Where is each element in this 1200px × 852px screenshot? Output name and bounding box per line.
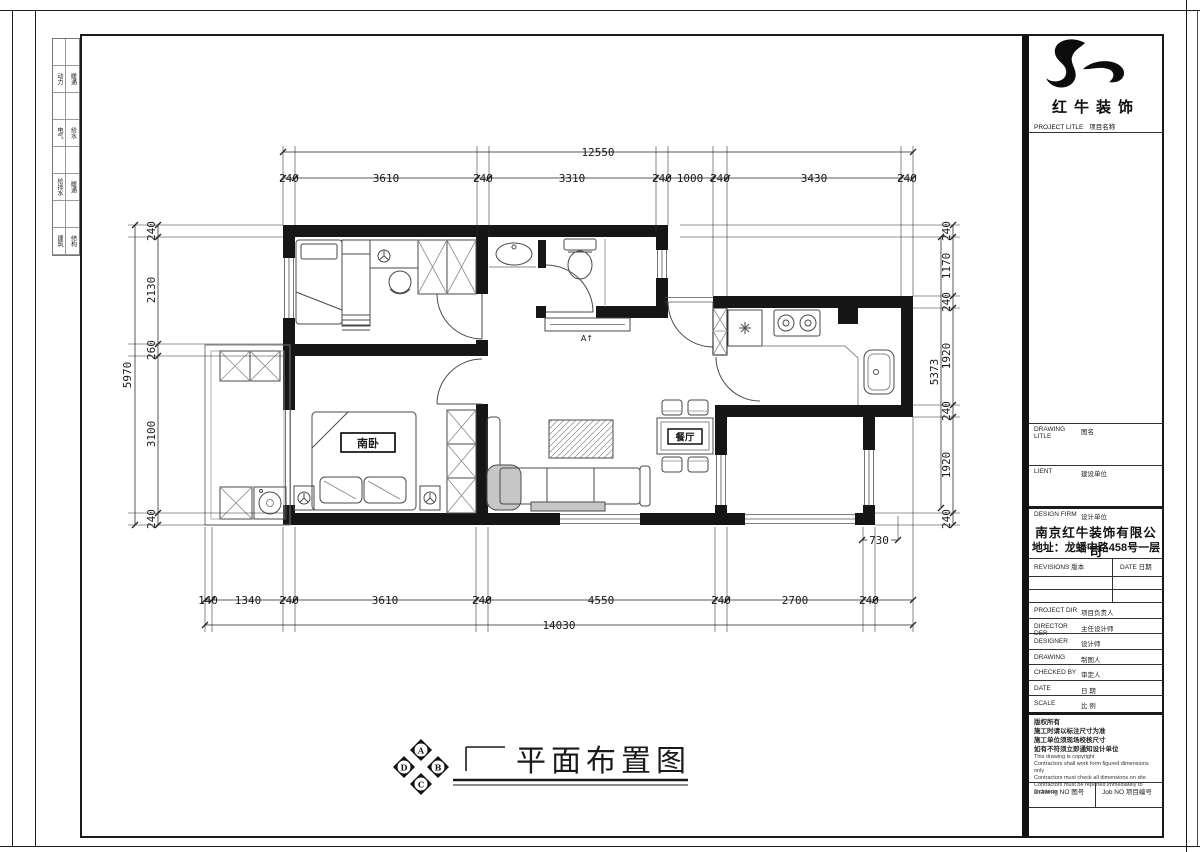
dim-top-0: 240 <box>279 172 299 185</box>
dim-top-5: 1000 <box>677 172 704 185</box>
bedroom-wardrobe <box>447 410 476 513</box>
balcony-enclosure <box>205 345 290 525</box>
dim-top-2: 240 <box>473 172 493 185</box>
revisions-header: REVISIONS 版本 DATE 日期 <box>1029 561 1163 571</box>
bull-logo-icon <box>1041 39 1151 95</box>
dimension-texts: 12550 240 3610 240 3310 240 1000 240 343… <box>121 146 953 632</box>
extension-lines <box>128 146 960 632</box>
strip-label: 电气 <box>56 127 62 139</box>
dim-bottom-5: 4550 <box>588 594 615 607</box>
compass-symbol: A B C D <box>393 739 449 795</box>
master-bed <box>312 412 416 510</box>
study-door <box>437 294 482 339</box>
compass-n: A <box>417 746 425 756</box>
brand-name: 红牛装饰 <box>1029 96 1163 117</box>
kitchen-door <box>716 357 760 401</box>
kitchen-flue <box>713 308 727 355</box>
kitchen-sink <box>864 350 894 394</box>
kitchen-counter-edge <box>762 346 858 405</box>
dim-bottom-0: 140 <box>198 594 218 607</box>
dim-left-2: 260 <box>145 340 158 360</box>
strip-label: 结构 <box>70 235 76 247</box>
dim-right-4: 240 <box>940 401 953 421</box>
study-wardrobe <box>418 240 476 294</box>
copyright-block: 版权所有 施工时请以标注尺寸为准 施工单位须现场校核尺寸 如有不符须立即通知设计… <box>1029 718 1163 796</box>
dimension-lines <box>135 152 953 625</box>
study-shelf <box>342 240 370 330</box>
dim-right-2: 240 <box>940 292 953 312</box>
drawing-no-row: Drawing NO 图号 Job NO 项目编号 <box>1029 786 1163 796</box>
compass-w: D <box>401 763 408 773</box>
strip-label: 给水 <box>70 127 76 139</box>
bedroom-door <box>437 359 482 404</box>
logo <box>1029 39 1163 95</box>
bath-east-window <box>658 250 667 278</box>
title-bracket <box>466 747 505 771</box>
study-desk <box>370 240 418 268</box>
living-east-window <box>717 455 726 505</box>
dim-top-8: 240 <box>897 172 917 185</box>
fridge <box>728 310 762 346</box>
dim-bottom-3: 3610 <box>372 594 399 607</box>
dim-top-1: 3610 <box>373 172 400 185</box>
dim-left-3: 3100 <box>145 421 158 448</box>
utility-south-window <box>745 515 855 524</box>
drawing-title-group: 平面布置图 <box>453 744 691 785</box>
discipline-strip: 动力 暖通 电气 给水 给排水 暖通 建筑 结构 <box>52 38 80 256</box>
designer-row: DESIGNER 设计师 <box>1029 638 1163 648</box>
utility-east-window <box>865 450 874 505</box>
design-firm-row: DESIGN FIRM 设计单位 <box>1029 511 1163 521</box>
compass-e: B <box>435 763 442 773</box>
dim-right-5: 1920 <box>940 452 953 479</box>
dim-bottom-8: 240 <box>859 594 879 607</box>
dim-right-3: 1920 <box>940 343 953 370</box>
dim-left-overall: 5970 <box>121 362 134 389</box>
dim-bottom-6: 240 <box>711 594 731 607</box>
project-title-en: PROJECT LITLE <box>1034 124 1083 131</box>
dim-right-0: 240 <box>940 221 953 241</box>
dim-right-1: 1170 <box>940 253 953 280</box>
drawing-title-row: DRAWING LITLE 图名 <box>1029 426 1163 440</box>
balcony-cabinets <box>220 351 280 519</box>
desk-lamp-symbol <box>378 250 390 262</box>
dim-bottom-overall: 14030 <box>542 619 575 632</box>
dim-bottom-4: 240 <box>472 594 492 607</box>
nightstand-right <box>420 486 440 510</box>
nightstand-left <box>294 486 314 510</box>
scale-row: SCALE 比 例 <box>1029 700 1163 710</box>
dim-top-6: 240 <box>710 172 730 185</box>
walls <box>283 225 913 525</box>
windows <box>285 250 874 524</box>
floorplan-canvas: 南卧 餐厅 A↑ 12550 240 3610 240 3310 <box>0 0 1200 852</box>
director-row: DIRECTOR DER 主任设计师 <box>1029 623 1163 637</box>
living-south-window <box>560 515 640 524</box>
study-single-bed <box>296 240 342 324</box>
rug <box>549 420 613 458</box>
dim-left-4: 240 <box>145 509 158 529</box>
client-row: LIENT 建设单位 <box>1029 468 1163 478</box>
dim-bottom-2: 240 <box>279 594 299 607</box>
study-west-window <box>285 258 294 318</box>
washing-machine <box>254 487 286 519</box>
drawing-sheet: 南卧 餐厅 A↑ 12550 240 3610 240 3310 <box>0 0 1200 852</box>
project-title-cn: 项目名称 <box>1089 124 1115 131</box>
kitchen-pilaster <box>838 308 858 324</box>
dim-extra-730: 730 <box>869 534 889 547</box>
strip-label: 给排水 <box>56 178 62 196</box>
entry-threshold <box>665 298 713 303</box>
dim-top-4: 240 <box>652 172 672 185</box>
compass-s: C <box>418 780 424 790</box>
titleblock-divider-bar <box>1022 35 1029 837</box>
dim-left-0: 240 <box>145 221 158 241</box>
title-block: 红牛装饰 PROJECT LITLE 项目名称 DRAWING LITLE 图名… <box>1029 35 1163 837</box>
section-mark: A↑ <box>581 334 593 343</box>
bathroom-basin <box>489 243 536 267</box>
project-dir-row: PROJECT DIR 项目负责人 <box>1029 607 1163 617</box>
toilet <box>564 239 596 279</box>
strip-label: 建筑 <box>56 235 62 247</box>
checked-row: CHECKED BY 审定人 <box>1029 669 1163 679</box>
drawing-row: DRAWING 制图人 <box>1029 654 1163 664</box>
company-address: 地址：龙蟠中路458号一层 <box>1029 539 1163 555</box>
strip-label: 暖通 <box>70 73 76 85</box>
dim-bottom-1: 1340 <box>235 594 262 607</box>
dimension-ticks <box>132 149 956 628</box>
dim-bottom-7: 2700 <box>782 594 809 607</box>
entry-door <box>668 302 713 347</box>
dim-top-overall: 12550 <box>581 146 614 159</box>
strip-label: 暖通 <box>70 181 76 193</box>
dim-top-3: 3310 <box>559 172 586 185</box>
dim-top-7: 3430 <box>801 172 828 185</box>
furniture <box>220 239 894 519</box>
stove <box>774 310 820 336</box>
date-row: DATE 日 期 <box>1029 685 1163 695</box>
dining-label: 餐厅 <box>674 432 695 444</box>
dim-left-1: 2130 <box>145 277 158 304</box>
entry-cabinet <box>545 318 630 331</box>
study-chair <box>389 271 411 294</box>
south-bedroom-label: 南卧 <box>357 436 379 450</box>
drawing-title: 平面布置图 <box>516 744 691 779</box>
dim-right-6: 240 <box>940 509 953 529</box>
strip-label: 动力 <box>56 73 62 85</box>
